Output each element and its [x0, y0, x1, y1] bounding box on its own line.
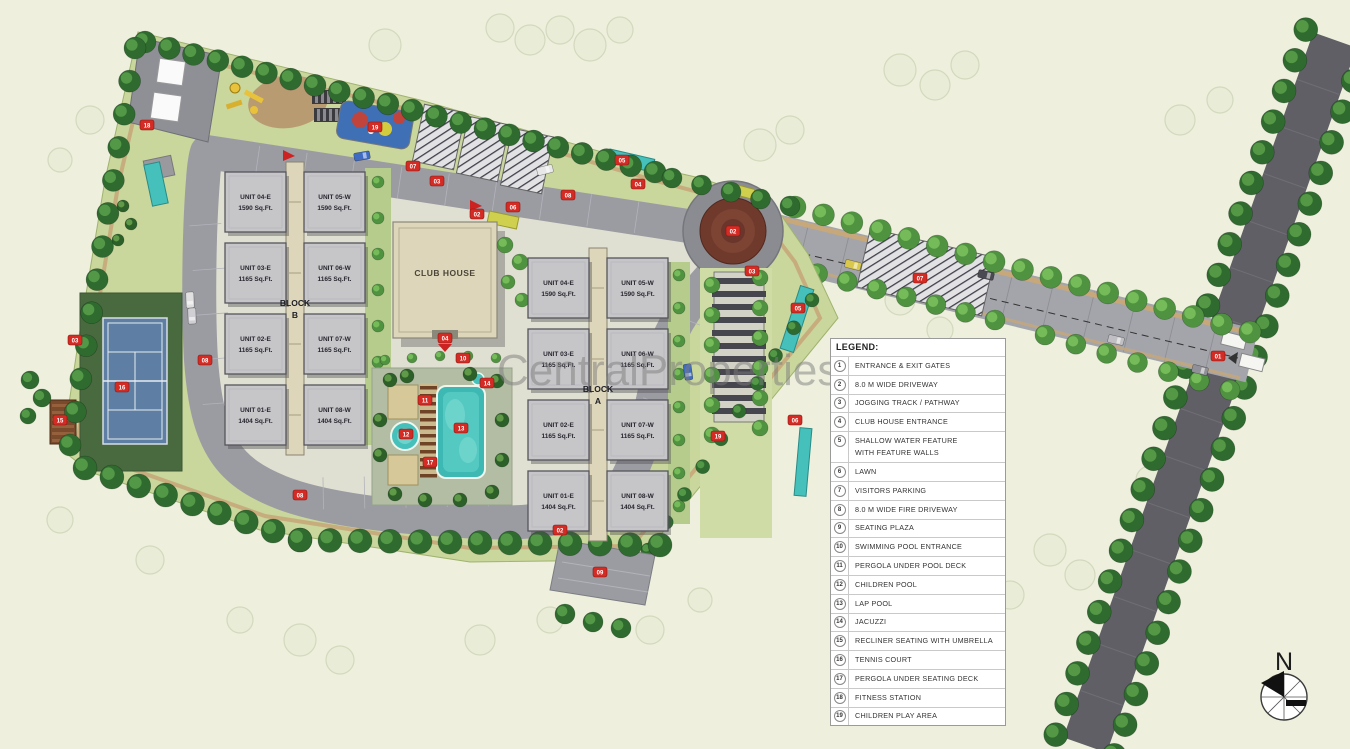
tree	[1125, 290, 1147, 312]
tree	[662, 168, 682, 188]
tree	[1222, 406, 1246, 430]
tree	[207, 501, 231, 525]
tree	[97, 202, 119, 224]
svg-text:06: 06	[792, 418, 799, 424]
marker-badge: 10	[456, 353, 470, 363]
unit-label: UNIT 03-E	[543, 351, 574, 358]
shrub	[380, 355, 390, 365]
unit-square	[304, 172, 365, 232]
tree	[571, 142, 593, 164]
svg-text:14: 14	[484, 381, 491, 387]
tree	[1120, 508, 1144, 532]
tree	[1066, 334, 1086, 354]
tree	[595, 149, 617, 171]
tree	[450, 111, 472, 133]
marker-badge: 08	[561, 190, 575, 200]
shrub	[673, 401, 685, 413]
tree	[231, 56, 253, 78]
unit-area-label: 1404 Sq.Ft.	[317, 418, 352, 425]
tree	[1182, 305, 1204, 327]
tree	[558, 532, 582, 556]
svg-text:08: 08	[202, 358, 209, 364]
unit-label: UNIT 05-W	[318, 194, 351, 201]
palm-tree	[453, 493, 467, 507]
tree	[261, 519, 285, 543]
tree	[1239, 171, 1263, 195]
tree	[898, 227, 920, 249]
unit-label: UNIT 02-E	[543, 422, 574, 429]
svg-text:13: 13	[458, 426, 465, 432]
unit-label: UNIT 01-E	[240, 407, 271, 414]
legend-row: 9SEATING PLAZA	[831, 519, 1005, 538]
legend-row: 1ENTRANCE & EXIT GATES	[831, 356, 1005, 375]
tree	[704, 307, 720, 323]
tree	[1294, 18, 1318, 42]
palm-tree	[485, 485, 499, 499]
svg-text:06: 06	[510, 205, 517, 211]
tree	[20, 408, 36, 424]
tree	[113, 103, 135, 125]
tree	[692, 175, 712, 195]
marker-badge: 16	[115, 382, 129, 392]
tree	[648, 533, 672, 557]
tree	[1128, 353, 1148, 373]
marker-badge: 04	[438, 333, 452, 343]
unit-area-label: 1404 Sq.Ft.	[620, 504, 655, 511]
svg-text:15: 15	[57, 418, 64, 424]
legend-panel: LEGEND: 1ENTRANCE & EXIT GATES 28.0 M WI…	[830, 338, 1006, 726]
tree	[498, 531, 522, 555]
shrub	[491, 353, 501, 363]
marker-badge: 03	[430, 176, 444, 186]
unit-square	[528, 258, 589, 318]
shrub	[435, 351, 445, 361]
tree	[523, 130, 545, 152]
legend-row: 88.0 M WIDE FIRE DRIVEWAY	[831, 500, 1005, 519]
tree	[1146, 621, 1170, 645]
tree	[704, 367, 720, 383]
svg-text:07: 07	[410, 164, 417, 170]
legend-row: 18FITNESS STATION	[831, 688, 1005, 707]
svg-text:07: 07	[917, 276, 924, 282]
tree	[1158, 362, 1178, 382]
tree	[408, 530, 432, 554]
marker-badge: 19	[368, 122, 382, 132]
unit-label: UNIT 06-W	[318, 265, 351, 272]
unit-square	[607, 258, 668, 318]
unit-area-label: 1165 Sq.Ft.	[318, 276, 352, 283]
tree	[869, 219, 891, 241]
tree	[21, 371, 39, 389]
marker-badge: 09	[593, 567, 607, 577]
svg-text:17: 17	[427, 460, 434, 466]
block-label: A	[595, 396, 601, 406]
clubhouse-label: CLUB HOUSE	[414, 268, 475, 278]
marker-badge: 04	[631, 179, 645, 189]
marker-badge: 01	[1211, 351, 1225, 361]
tree	[1012, 259, 1034, 281]
tree	[677, 487, 691, 501]
tree	[377, 93, 399, 115]
unit-area-label: 1165 Sq.Ft.	[318, 347, 352, 354]
tree	[1131, 477, 1155, 501]
marker-badge: 08	[198, 355, 212, 365]
tree	[280, 68, 302, 90]
marker-badge: 15	[53, 415, 67, 425]
tree	[721, 182, 741, 202]
palm-tree	[117, 200, 129, 212]
legend-row: 4CLUB HOUSE ENTRANCE	[831, 412, 1005, 431]
tree	[64, 401, 86, 423]
tree	[81, 302, 103, 324]
unit-label: UNIT 04-E	[240, 194, 271, 201]
unit-label: UNIT 03-E	[240, 265, 271, 272]
legend-row: 19CHILDREN PLAY AREA	[831, 707, 1005, 726]
shrub	[673, 467, 685, 479]
svg-text:12: 12	[403, 432, 410, 438]
tree	[1211, 313, 1233, 335]
marker-badge: 14	[480, 378, 494, 388]
unit-area-label: 1590 Sq.Ft.	[238, 205, 273, 212]
tree	[1218, 232, 1242, 256]
tree	[769, 349, 783, 363]
tree	[752, 420, 768, 436]
legend-row: 5SHALLOW WATER FEATUREWITH FEATURE WALLS	[831, 431, 1005, 462]
site-plan-map: UNIT 04-E1590 Sq.Ft.UNIT 05-W1590 Sq.Ft.…	[0, 0, 1350, 749]
tree	[468, 531, 492, 555]
unit-square	[528, 329, 589, 389]
unit-label: UNIT 08-W	[318, 407, 351, 414]
unit-area-label: 1590 Sq.Ft.	[541, 291, 576, 298]
unit-area-label: 1165 Sq.Ft.	[239, 276, 273, 283]
marker-badge: 02	[726, 226, 740, 236]
marker-badge: 06	[506, 202, 520, 212]
legend-row: 17PERGOLA UNDER SEATING DECK	[831, 669, 1005, 688]
car	[186, 292, 195, 308]
marker-badge: 05	[615, 155, 629, 165]
palm-tree	[373, 413, 387, 427]
marker-badge: 05	[791, 303, 805, 313]
svg-text:03: 03	[749, 269, 756, 275]
shrub	[372, 212, 384, 224]
tree	[304, 74, 326, 96]
tree	[1098, 569, 1122, 593]
tree	[1211, 437, 1235, 461]
block-label: BLOCK	[583, 384, 614, 394]
tree	[955, 243, 977, 265]
svg-text:05: 05	[795, 306, 802, 312]
tree	[704, 277, 720, 293]
tree	[867, 279, 887, 299]
tree	[1320, 130, 1344, 154]
tree	[1178, 529, 1202, 553]
tree	[348, 529, 372, 553]
tree	[1276, 253, 1300, 277]
tree	[751, 189, 771, 209]
legend-item-number: 1	[834, 360, 846, 372]
tree	[1261, 110, 1285, 134]
unit-area-label: 1590 Sq.Ft.	[620, 291, 655, 298]
shrub	[372, 320, 384, 332]
tree	[618, 533, 642, 557]
unit-square	[225, 243, 286, 303]
tree	[438, 530, 462, 554]
tree	[100, 465, 124, 489]
svg-text:19: 19	[715, 434, 722, 440]
tree	[704, 397, 720, 413]
tree	[704, 337, 720, 353]
tree	[158, 37, 180, 59]
marker-badge: 12	[399, 429, 413, 439]
tree	[124, 37, 146, 59]
shrub	[497, 237, 513, 253]
svg-text:19: 19	[372, 125, 379, 131]
marker-badge: 18	[140, 120, 154, 130]
svg-text:02: 02	[474, 212, 481, 218]
tree	[234, 510, 258, 534]
unit-square	[528, 471, 589, 531]
tree	[154, 483, 178, 507]
palm-tree	[125, 218, 137, 230]
marker-badge: 02	[553, 525, 567, 535]
unit-area-label: 1165 Sq.Ft.	[621, 433, 655, 440]
unit-square	[304, 243, 365, 303]
tree	[752, 360, 768, 376]
shrub	[673, 335, 685, 347]
tree	[1154, 298, 1176, 320]
palm-tree	[373, 448, 387, 462]
marker-badge: 11	[418, 395, 432, 405]
legend-row: 12CHILDREN POOL	[831, 575, 1005, 594]
unit-label: UNIT 06-W	[621, 351, 654, 358]
shrub	[372, 284, 384, 296]
block-label: BLOCK	[280, 298, 311, 308]
tree	[1207, 263, 1231, 287]
tree	[732, 404, 746, 418]
tree	[752, 390, 768, 406]
unit-square	[225, 385, 286, 445]
marker-badge: 19	[711, 431, 725, 441]
legend-row: 14JACUZZI	[831, 613, 1005, 632]
svg-text:04: 04	[635, 182, 642, 188]
unit-label: UNIT 02-E	[240, 336, 271, 343]
legend-row: 15RECLINER SEATING WITH UMBRELLA	[831, 631, 1005, 650]
tree	[983, 251, 1005, 273]
unit-area-label: 1590 Sq.Ft.	[317, 205, 352, 212]
tree	[1239, 321, 1261, 343]
unit-label: UNIT 05-W	[621, 280, 654, 287]
palm-tree	[463, 367, 477, 381]
marker-badge: 17	[423, 457, 437, 467]
tree	[1109, 539, 1133, 563]
marker-badge: 13	[454, 423, 468, 433]
tree	[611, 618, 631, 638]
site-plan-image: UNIT 04-E1590 Sq.Ft.UNIT 05-W1590 Sq.Ft.…	[0, 0, 1350, 749]
svg-text:05: 05	[619, 158, 626, 164]
palm-tree	[495, 413, 509, 427]
unit-square	[304, 385, 365, 445]
marker-badge: 08	[293, 490, 307, 500]
shrub	[673, 269, 685, 281]
tree	[1287, 222, 1311, 246]
tree	[378, 529, 402, 553]
legend-title: LEGEND:	[831, 339, 1005, 356]
tree	[1040, 266, 1062, 288]
legend-row: 7VISITORS PARKING	[831, 481, 1005, 500]
shrub	[501, 275, 515, 289]
tree	[1229, 202, 1253, 226]
tree	[812, 204, 834, 226]
tree	[70, 368, 92, 390]
tree	[86, 269, 108, 291]
tree	[33, 389, 51, 407]
tree	[696, 460, 710, 474]
svg-text:08: 08	[297, 493, 304, 499]
marker-badge: 02	[470, 209, 484, 219]
block-label: B	[292, 310, 298, 320]
legend-item-label: ENTRANCE & EXIT GATES	[849, 360, 950, 372]
tree	[119, 70, 141, 92]
tree	[752, 300, 768, 316]
tree	[547, 136, 569, 158]
tree	[1265, 284, 1289, 308]
unit-label: UNIT 07-W	[318, 336, 351, 343]
svg-text:01: 01	[1215, 354, 1222, 360]
tree	[255, 62, 277, 84]
svg-text:11: 11	[422, 398, 429, 404]
marker-badge: 07	[913, 273, 927, 283]
unit-square	[607, 400, 668, 460]
unit-label: UNIT 07-W	[621, 422, 654, 429]
tree	[1087, 600, 1111, 624]
tree	[1113, 713, 1137, 737]
svg-text:02: 02	[557, 528, 564, 534]
shrub	[372, 248, 384, 260]
tree	[181, 492, 205, 516]
marker-badge: 06	[788, 415, 802, 425]
unit-label: UNIT 08-W	[621, 493, 654, 500]
tree	[752, 330, 768, 346]
tree	[1163, 385, 1187, 409]
tree	[1068, 274, 1090, 296]
unit-square	[304, 314, 365, 374]
tree	[353, 87, 375, 109]
tree	[1055, 692, 1079, 716]
tree	[1309, 161, 1333, 185]
palm-tree	[112, 234, 124, 246]
car	[188, 308, 197, 324]
legend-row: 10SWIMMING POOL ENTRANCE	[831, 537, 1005, 556]
shrub	[512, 254, 528, 270]
tree	[1035, 325, 1055, 345]
tree	[1272, 79, 1296, 103]
tree	[1167, 559, 1191, 583]
legend-row: 6LAWN	[831, 462, 1005, 481]
shrub	[673, 368, 685, 380]
svg-text:08: 08	[565, 193, 572, 199]
tree	[1200, 467, 1224, 491]
tree	[985, 310, 1005, 330]
tree	[1152, 416, 1176, 440]
marker-badge: 07	[406, 161, 420, 171]
marker-badge: 03	[68, 335, 82, 345]
unit-label: UNIT 01-E	[543, 493, 574, 500]
tree	[59, 434, 81, 456]
unit-square	[607, 471, 668, 531]
tree	[837, 271, 857, 291]
svg-text:03: 03	[434, 179, 441, 185]
tree	[1283, 48, 1307, 72]
svg-text:02: 02	[730, 229, 737, 235]
tree	[401, 99, 423, 121]
unit-area-label: 1165 Sq.Ft.	[542, 433, 576, 440]
tree	[474, 118, 496, 140]
tree	[1097, 343, 1117, 363]
shrub	[372, 176, 384, 188]
tree	[1157, 590, 1181, 614]
palm-tree	[400, 369, 414, 383]
svg-text:10: 10	[460, 356, 467, 362]
svg-text:03: 03	[72, 338, 79, 344]
tree	[92, 236, 114, 258]
tree	[787, 321, 801, 335]
tree	[1298, 192, 1322, 216]
svg-text:04: 04	[442, 336, 449, 342]
tree	[1135, 651, 1159, 675]
unit-label: UNIT 04-E	[543, 280, 574, 287]
marker-badge: 03	[745, 266, 759, 276]
svg-text:18: 18	[144, 123, 151, 129]
tree	[328, 81, 350, 103]
tree	[183, 43, 205, 65]
tree	[127, 474, 151, 498]
tree	[1076, 631, 1100, 655]
shrub	[407, 353, 417, 363]
svg-text:09: 09	[597, 570, 604, 576]
tree	[288, 528, 312, 552]
shrub	[673, 434, 685, 446]
tree	[498, 124, 520, 146]
tree	[207, 50, 229, 72]
tree	[108, 136, 130, 158]
unit-square	[528, 400, 589, 460]
svg-text:16: 16	[119, 385, 126, 391]
tree	[1142, 447, 1166, 471]
tree	[583, 612, 603, 632]
shrub	[673, 302, 685, 314]
tree	[780, 196, 800, 216]
shrub	[673, 500, 685, 512]
legend-row: 16TENNIS COURT	[831, 650, 1005, 669]
tree	[955, 302, 975, 322]
map-artwork: UNIT 04-E1590 Sq.Ft.UNIT 05-W1590 Sq.Ft.…	[0, 0, 1350, 749]
legend-row: 3JOGGING TRACK / PATHWAY	[831, 394, 1005, 413]
unit-area-label: 1404 Sq.Ft.	[541, 504, 576, 511]
tree	[73, 456, 97, 480]
palm-tree	[418, 493, 432, 507]
palm-tree	[495, 453, 509, 467]
tree	[1220, 380, 1240, 400]
tree	[1097, 282, 1119, 304]
palm-tree	[388, 487, 402, 501]
legend-row: 28.0 M WIDE DRIVEWAY	[831, 375, 1005, 394]
unit-square	[225, 172, 286, 232]
tree	[805, 293, 819, 307]
tree	[926, 235, 948, 257]
shrub	[515, 293, 529, 307]
tree	[841, 212, 863, 234]
unit-square	[607, 329, 668, 389]
